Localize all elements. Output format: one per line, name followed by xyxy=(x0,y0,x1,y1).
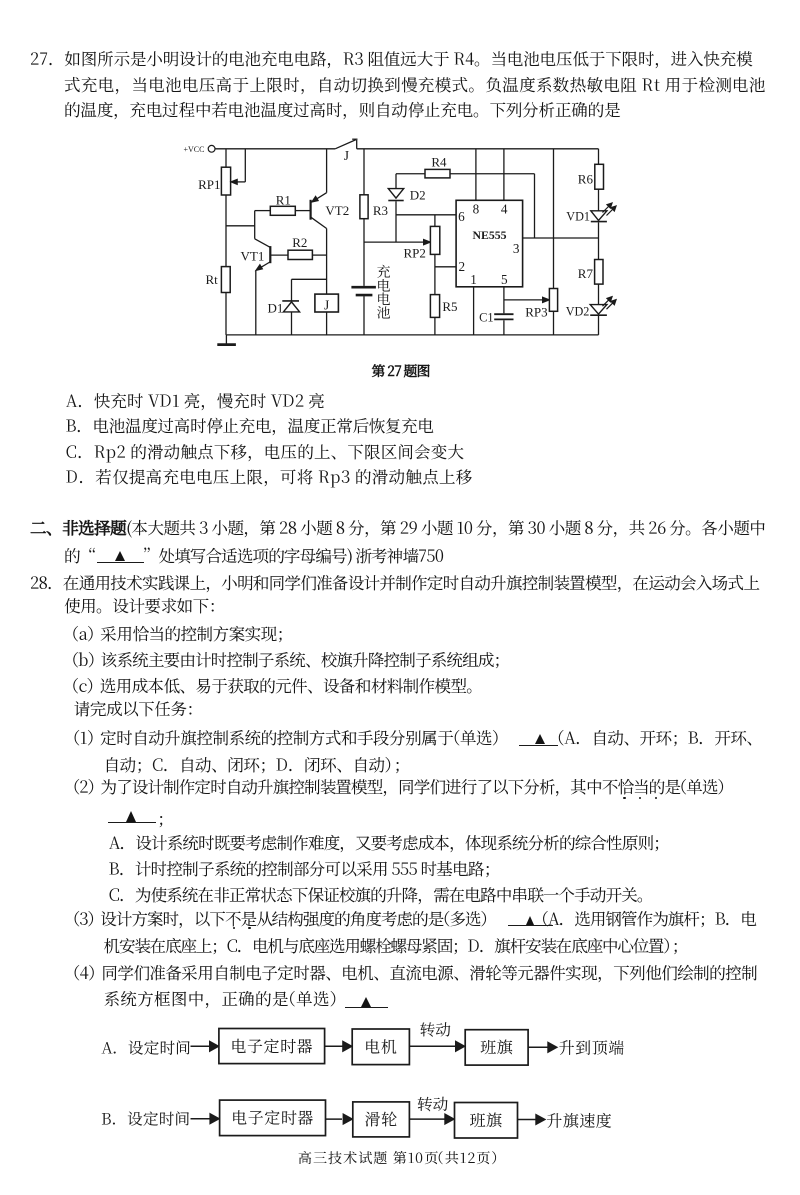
svg-text:3: 3 xyxy=(513,241,520,256)
svg-text:RP2: RP2 xyxy=(403,246,425,261)
svg-text:1: 1 xyxy=(470,272,477,287)
svg-text:6: 6 xyxy=(458,209,465,224)
svg-text:D2: D2 xyxy=(410,187,426,202)
svg-text:NE555: NE555 xyxy=(472,228,506,242)
svg-text:+VCC: +VCC xyxy=(184,145,205,154)
svg-text:C1: C1 xyxy=(479,311,493,325)
svg-text:电机: 电机 xyxy=(364,1034,397,1057)
svg-text:滑轮: 滑轮 xyxy=(365,1107,398,1130)
svg-text:班旗: 班旗 xyxy=(469,1108,502,1131)
svg-text:4: 4 xyxy=(501,202,508,217)
svg-text:升到顶端: 升到顶端 xyxy=(559,1035,625,1058)
svg-text:R6: R6 xyxy=(578,171,594,186)
svg-text:班旗: 班旗 xyxy=(480,1035,513,1058)
svg-text:VT1: VT1 xyxy=(241,248,265,263)
svg-text:2: 2 xyxy=(459,259,466,274)
svg-text:R2: R2 xyxy=(292,235,307,250)
svg-text:升旗速度: 升旗速度 xyxy=(546,1108,612,1131)
svg-text:VD1: VD1 xyxy=(566,210,590,224)
svg-text:转动: 转动 xyxy=(419,1018,450,1040)
svg-text:电子定时器: 电子定时器 xyxy=(231,1105,314,1128)
svg-text:R7: R7 xyxy=(578,266,594,281)
svg-text:R3: R3 xyxy=(373,203,388,218)
svg-text:电子定时器: 电子定时器 xyxy=(230,1034,313,1057)
svg-text:充电电池: 充电电池 xyxy=(377,261,391,322)
svg-text:转动: 转动 xyxy=(417,1093,448,1115)
svg-text:RP1: RP1 xyxy=(198,177,220,192)
svg-text:J: J xyxy=(344,148,349,163)
svg-text:B．设定时间: B．设定时间 xyxy=(101,1107,190,1129)
svg-text:R1: R1 xyxy=(276,193,291,208)
svg-text:8: 8 xyxy=(473,202,480,217)
svg-text:VT2: VT2 xyxy=(325,203,349,218)
svg-text:R5: R5 xyxy=(442,299,457,314)
svg-text:5: 5 xyxy=(501,272,508,287)
svg-text:Rt: Rt xyxy=(206,272,219,287)
svg-text:A．设定时间: A．设定时间 xyxy=(101,1036,191,1058)
svg-text:VD2: VD2 xyxy=(566,304,590,318)
svg-text:R4: R4 xyxy=(431,154,447,169)
svg-text:RP3: RP3 xyxy=(525,304,547,319)
svg-text:J: J xyxy=(324,297,329,312)
svg-text:D1: D1 xyxy=(268,301,284,316)
